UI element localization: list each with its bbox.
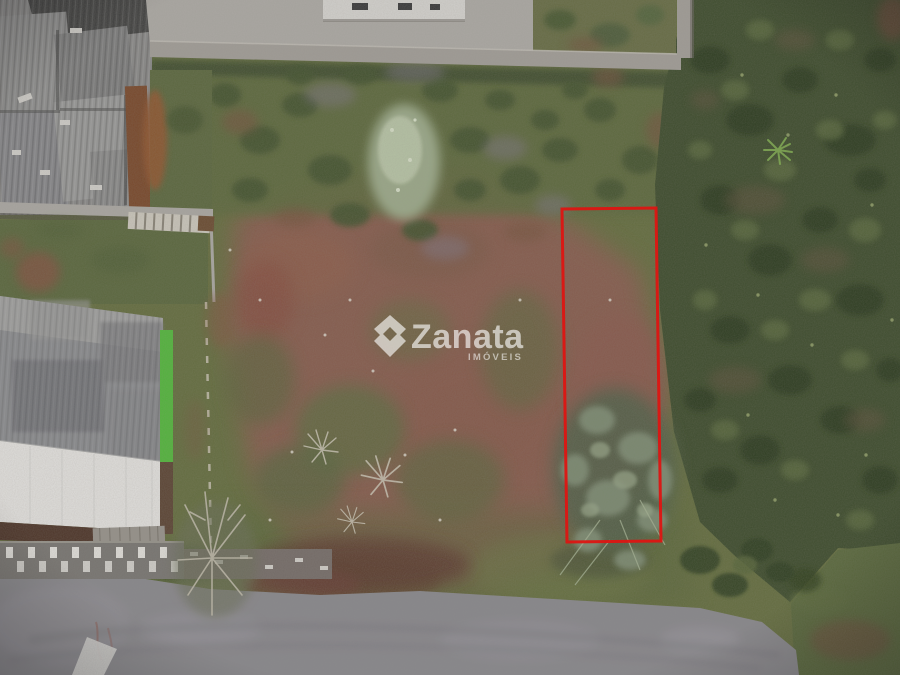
watermark-tagline: IMÓVEIS [468,351,523,363]
aerial-photo-viewport: Zanata IMÓVEIS [0,0,900,675]
watermark-brand: Zanata [411,318,524,356]
aerial-photo: Zanata IMÓVEIS [0,0,900,675]
